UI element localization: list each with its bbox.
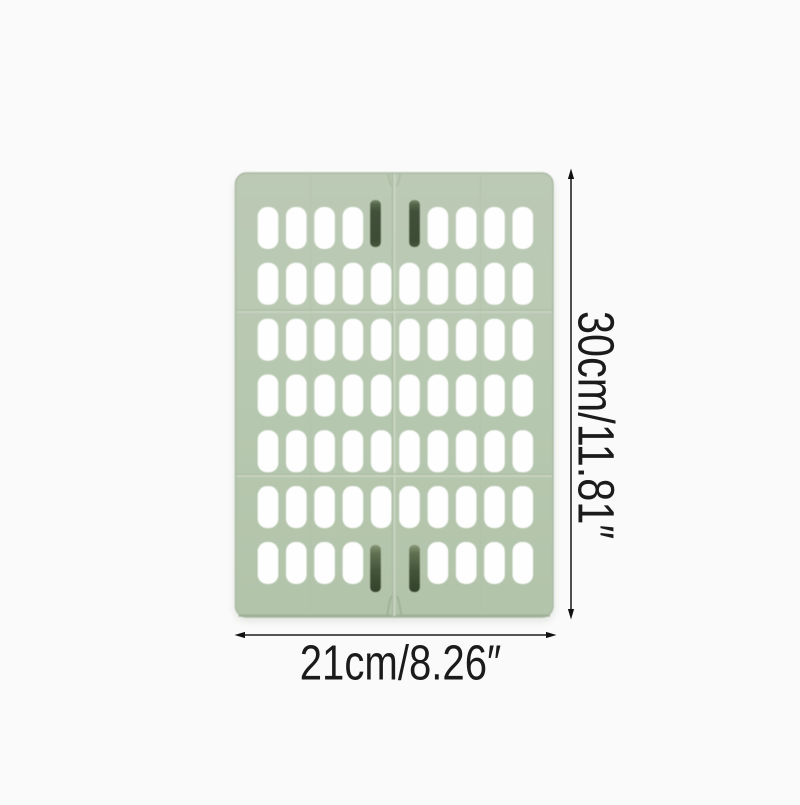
svg-text:21cm/8.26″: 21cm/8.26″ <box>300 637 502 691</box>
svg-text:30cm/11.81″: 30cm/11.81″ <box>568 311 625 539</box>
